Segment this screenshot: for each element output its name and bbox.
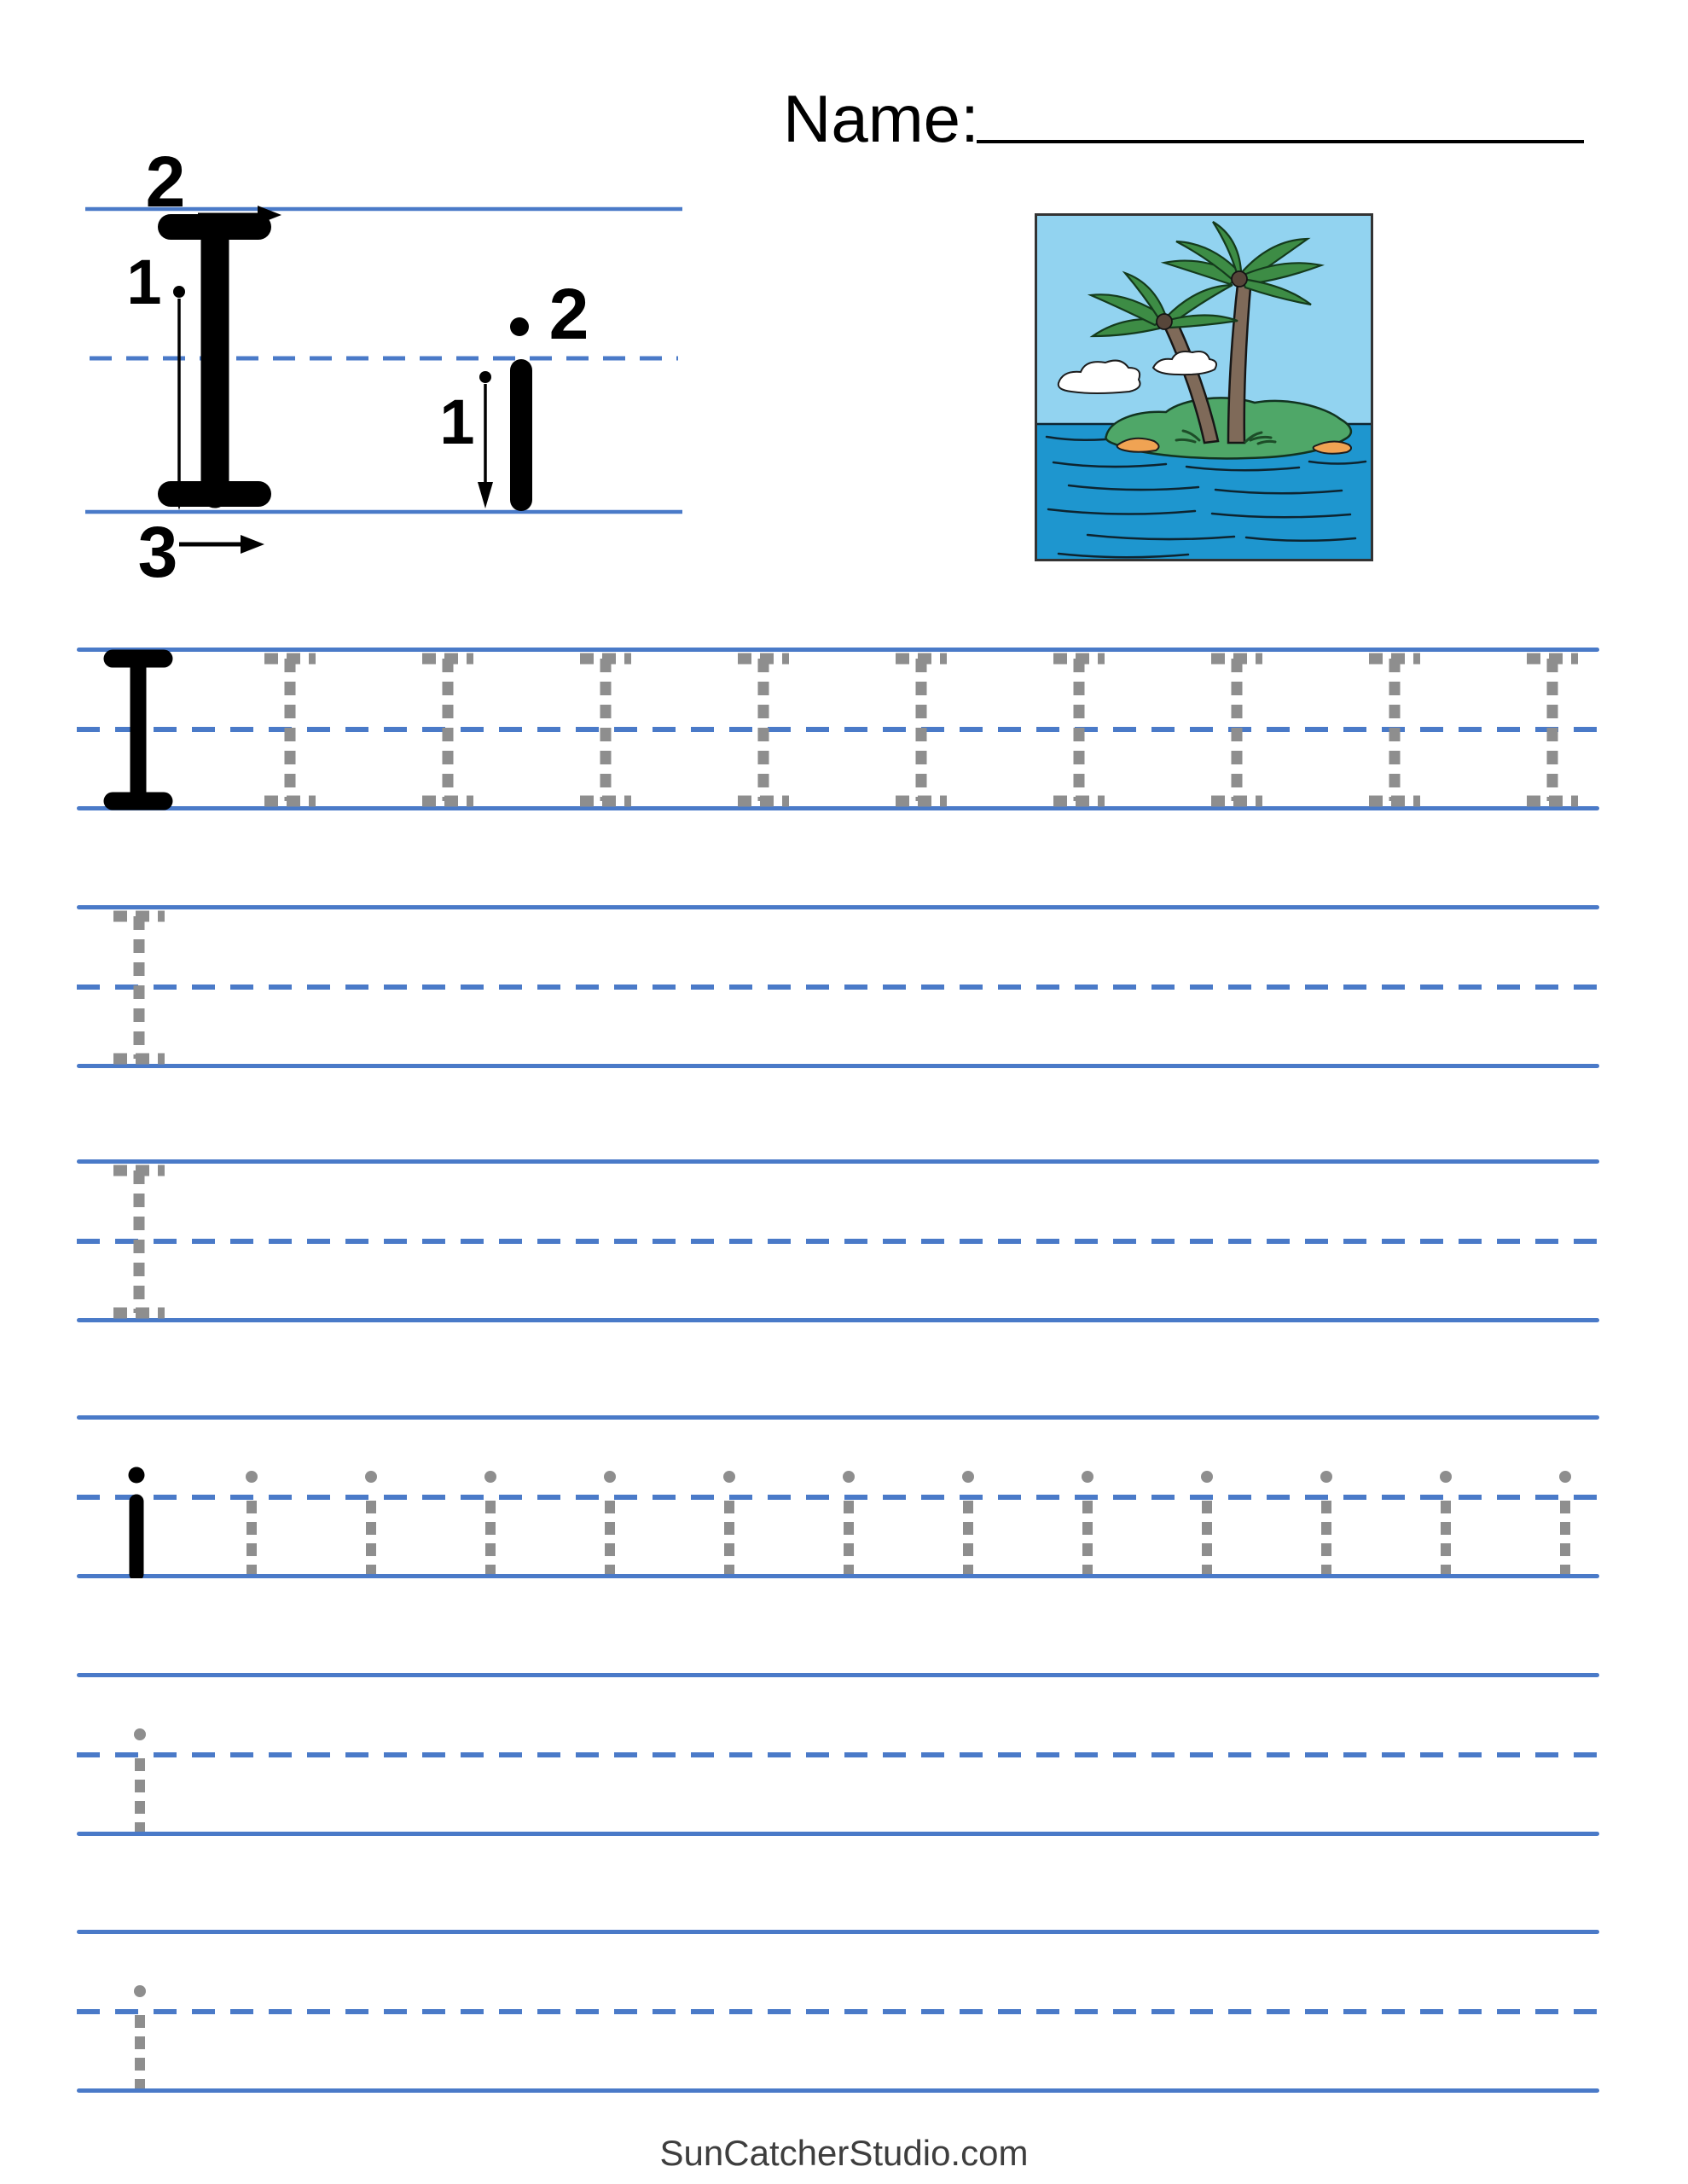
stroke-number-2: 2 <box>146 145 186 222</box>
trace-letter-i-dashed <box>114 1673 165 1836</box>
stroke-arrow-down-upper <box>171 286 187 510</box>
trace-letter-I-dashed <box>401 648 495 810</box>
trace-letter-I-dashed <box>92 1159 186 1322</box>
trace-letter-i-dashed <box>1062 1415 1113 1578</box>
name-label: Name: <box>783 85 979 152</box>
footer-credit: SunCatcherStudio.com <box>0 2133 1688 2174</box>
island-illustration <box>1035 213 1373 561</box>
stroke-number-1: 1 <box>126 247 161 317</box>
trace-letter-i-dashed <box>114 1930 165 2093</box>
trace-letter-i-dashed <box>823 1415 874 1578</box>
trace-letter-I-dashed <box>1032 648 1126 810</box>
trace-letter-I-dashed <box>874 648 968 810</box>
name-blank-line <box>977 140 1584 143</box>
trace-letter-i-dashed <box>584 1415 635 1578</box>
lowercase-letter-model <box>510 317 529 500</box>
trace-letter-I-solid <box>91 648 185 810</box>
trace-letter-i-dashed <box>943 1415 994 1578</box>
practice-row-lowercase-model <box>77 1415 1599 1578</box>
trace-letter-i-dashed <box>345 1415 397 1578</box>
coconut-right <box>1232 271 1247 287</box>
trace-letter-I-dashed <box>1505 648 1599 810</box>
trace-letter-i-dashed <box>1420 1415 1471 1578</box>
practice-row-uppercase-blank-2 <box>77 1159 1599 1322</box>
trace-letter-I-dashed <box>1348 648 1441 810</box>
letter-formation-guide: 2 1 3 2 1 <box>51 145 716 597</box>
practice-row-uppercase-model <box>77 648 1599 810</box>
trace-letter-i-dashed <box>465 1415 516 1578</box>
stroke-arrow-right-bottom <box>179 535 264 554</box>
stroke-number-stem: 1 <box>439 386 474 457</box>
trace-letter-I-dashed <box>243 648 337 810</box>
trace-letter-I-dashed <box>1190 648 1284 810</box>
trace-letter-I-dashed <box>716 648 810 810</box>
stroke-number-dot: 2 <box>549 274 589 354</box>
trace-letter-I-dashed <box>559 648 653 810</box>
trace-letter-i-dashed <box>226 1415 277 1578</box>
trace-letter-I-dashed <box>92 905 186 1068</box>
coconut-left <box>1157 314 1172 329</box>
trace-letter-i-dashed <box>1181 1415 1233 1578</box>
trace-letter-i-dashed <box>1540 1415 1591 1578</box>
trace-letter-i-solid <box>111 1415 162 1578</box>
practice-row-lowercase-blank-2 <box>77 1930 1599 2093</box>
trace-letter-i-dashed <box>704 1415 755 1578</box>
trace-letter-i-dashed <box>1301 1415 1352 1578</box>
stroke-arrow-down-lower <box>478 371 493 508</box>
worksheet-page: Name: 2 1 3 <box>0 0 1688 2184</box>
stroke-number-3: 3 <box>138 512 178 592</box>
practice-row-lowercase-blank-1 <box>77 1673 1599 1836</box>
practice-row-uppercase-blank-1 <box>77 905 1599 1068</box>
